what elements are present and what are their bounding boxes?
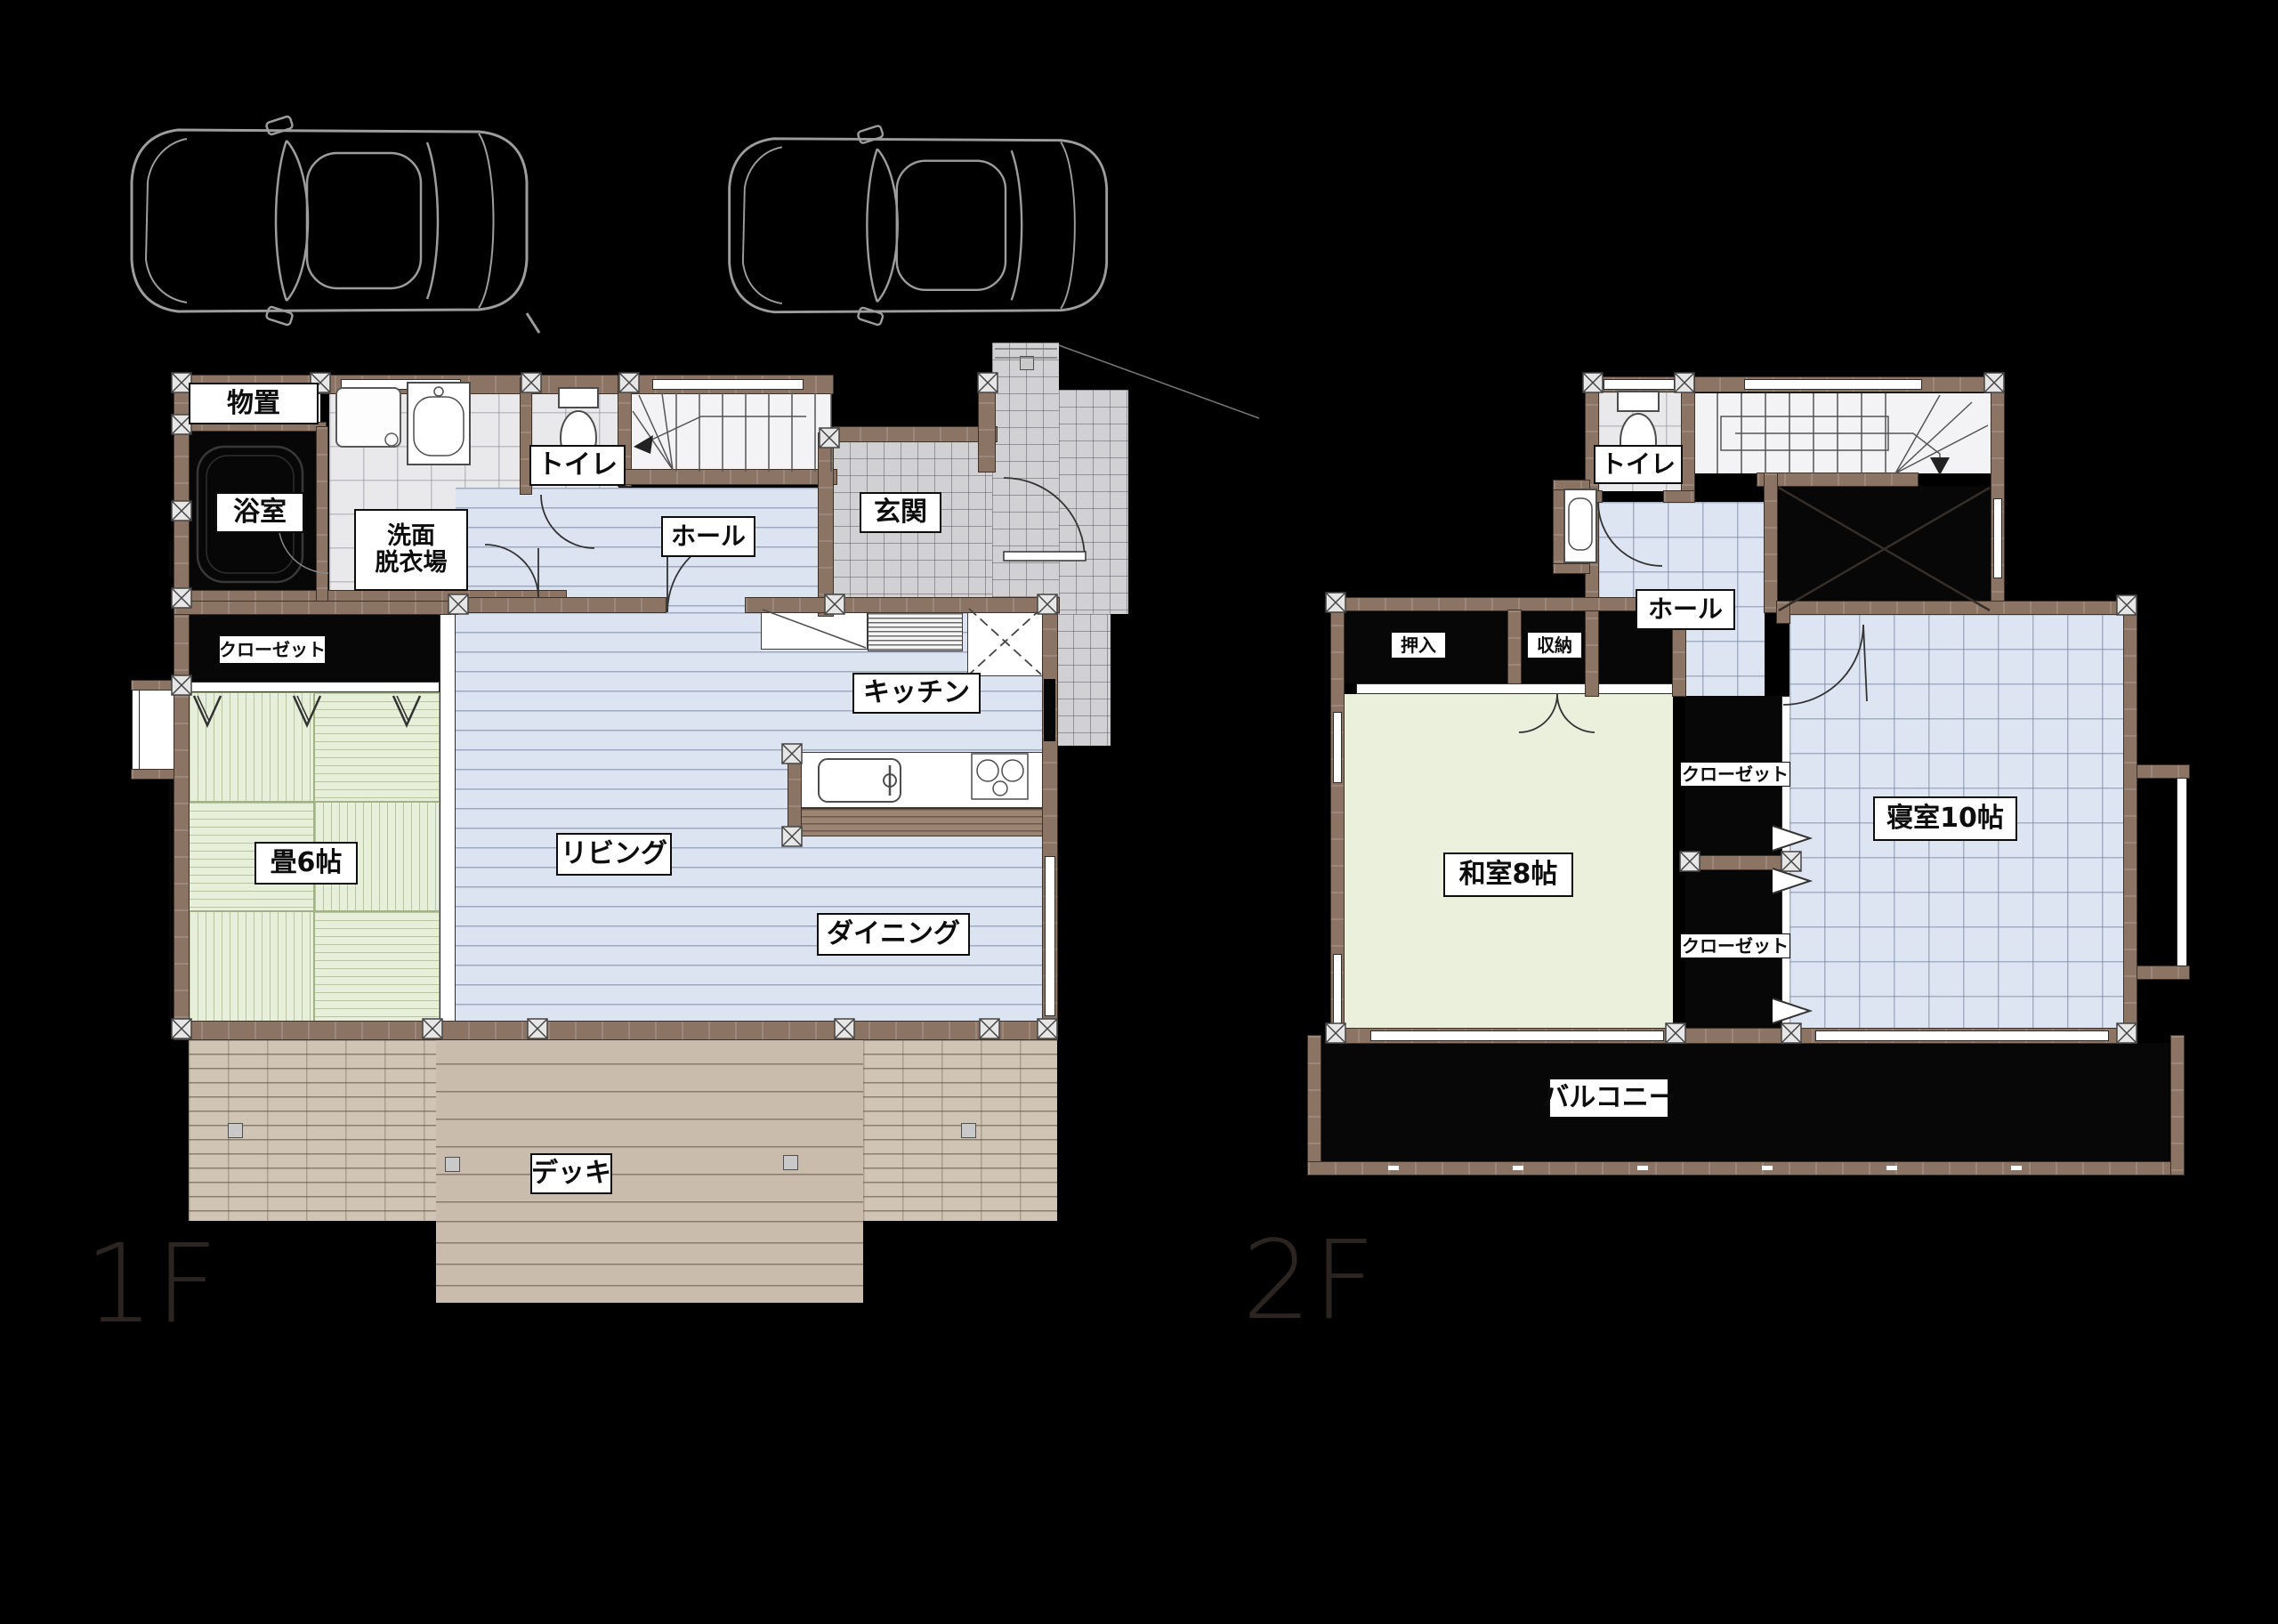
deck — [436, 1036, 863, 1221]
room-label-kitchen-1f: キッチン — [852, 673, 981, 714]
room-label-bedroom-2f: 寝室10帖 — [1873, 796, 2017, 841]
room-label-hall-1f: ホール — [661, 516, 755, 557]
room-label-entrance-1f: 玄関 — [860, 492, 941, 533]
room-label-bathroom-1f: 浴室 — [215, 492, 304, 533]
floor-title-1f: 1F — [85, 1221, 220, 1347]
stairs-2f — [1694, 393, 1991, 473]
room-label-hall-2f: ホール — [1636, 589, 1735, 630]
balcony — [1321, 1043, 2171, 1162]
room-label-tatami-1f: 畳6帖 — [254, 842, 358, 885]
room-label-storage-1f: 物置 — [189, 383, 319, 424]
room-label-closet-1f: クローゼット — [219, 635, 326, 664]
room-label-toilet-1f: トイレ — [529, 445, 626, 486]
porch-tiles — [992, 343, 1059, 614]
floor-title-2f: 2F — [1242, 1217, 1377, 1344]
room-label-deck-1f: デッキ — [530, 1153, 612, 1194]
car-2-icon — [730, 125, 1107, 326]
kitchen-back-counter — [761, 608, 868, 650]
room-label-japanese-2f: 和室8帖 — [1443, 852, 1573, 897]
room-label-closet-upper-2f: クローゼット — [1680, 762, 1790, 787]
stairs-1f — [631, 393, 831, 472]
room-label-storage-2f: 収納 — [1527, 632, 1582, 658]
room-label-balcony-2f: バルコニー — [1548, 1078, 1669, 1119]
room-label-toilet-2f: トイレ — [1594, 445, 1683, 484]
room-label-dining-1f: ダイニング — [817, 913, 970, 956]
kitchen-pantry — [967, 607, 1043, 676]
room-label-washroom-1f: 洗面脱衣場 — [354, 509, 468, 591]
car-1-icon — [132, 116, 539, 333]
void-2f — [1777, 486, 1991, 612]
brick-terrace-left — [189, 1039, 436, 1221]
brick-terrace-right — [863, 1039, 1057, 1221]
floorplan-canvas: 物置 浴室 洗面脱衣場 トイレ ホール 玄関 キッチン クローゼット 畳6帖 リ… — [0, 0, 2278, 1624]
room-label-futon-closet-2f: 押入 — [1391, 632, 1446, 658]
kitchen-island — [801, 752, 1055, 808]
room-label-closet-lower-2f: クローゼット — [1680, 933, 1790, 958]
room-label-living-1f: リビング — [556, 833, 672, 876]
